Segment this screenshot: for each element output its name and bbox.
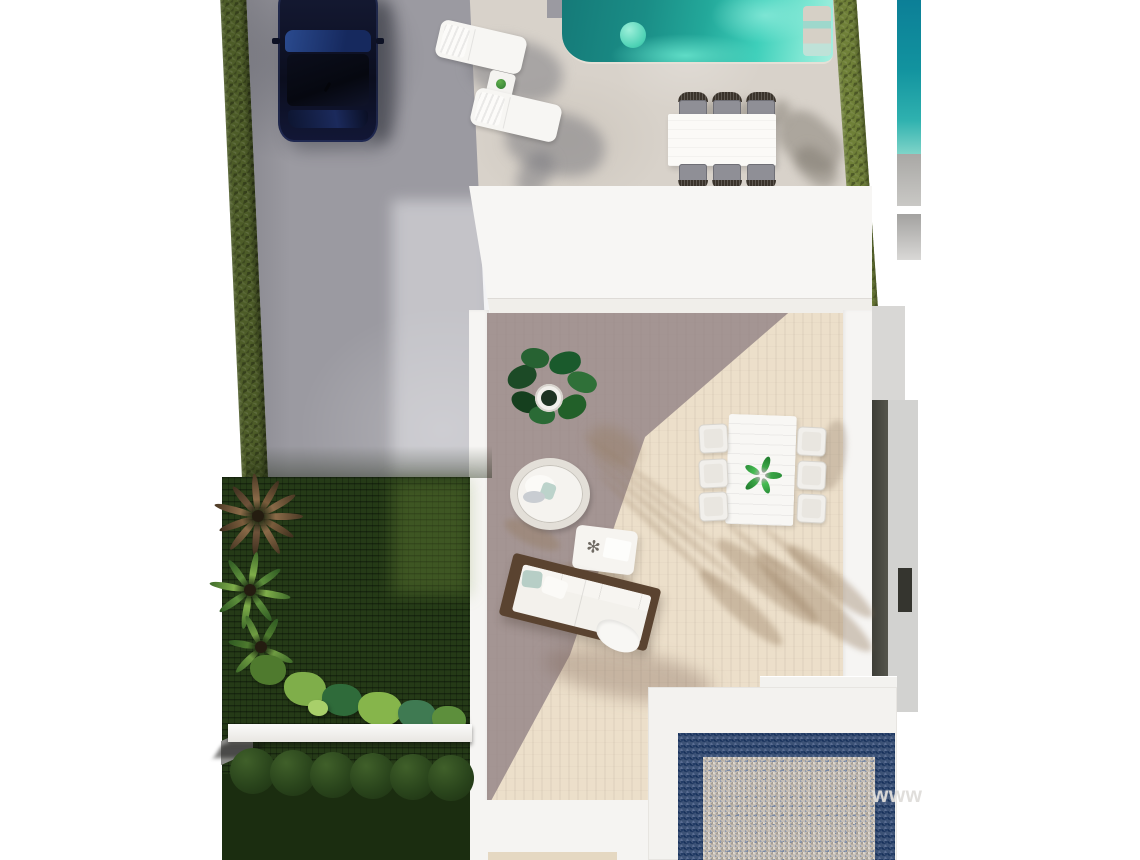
chair-pad — [802, 466, 822, 486]
lawn-sunlit-patch — [392, 480, 470, 595]
house-roof — [465, 186, 872, 315]
pillow — [521, 570, 543, 589]
pool-float — [620, 22, 646, 48]
shrub — [250, 655, 286, 685]
chair-pad — [704, 497, 724, 517]
parked-car — [278, 0, 378, 142]
pot-soil — [541, 390, 557, 406]
coffee-table: ✻ — [572, 524, 639, 575]
terrace-sill — [488, 852, 617, 860]
lounger-pillow — [439, 23, 471, 58]
pool-steps — [803, 6, 831, 56]
roof-edge — [465, 298, 872, 315]
terrace-chair — [796, 493, 826, 523]
car-roof — [287, 54, 369, 106]
shrub — [358, 692, 402, 726]
terrace-lower-wall — [469, 800, 652, 860]
palm-core — [252, 510, 264, 522]
chair-pad — [704, 429, 724, 449]
plant-pot — [535, 384, 563, 412]
planter-ledge — [228, 724, 472, 742]
chair-pad — [802, 499, 822, 519]
lounger-pillow — [474, 91, 506, 126]
watermark: www — [872, 784, 923, 808]
potted-fig-plant — [505, 348, 597, 432]
gravel-patio-inner — [703, 757, 875, 860]
car-mirror-right — [376, 38, 384, 44]
hedge-ball — [428, 755, 474, 801]
wall-window — [898, 568, 912, 612]
hanging-chair — [510, 458, 590, 530]
terrace-chair — [698, 423, 728, 453]
swimming-pool — [562, 0, 833, 64]
terrace-chair — [698, 458, 728, 488]
table-book — [602, 537, 631, 562]
chair-pad — [704, 464, 724, 484]
car-windshield — [285, 30, 371, 52]
table-centerpiece-plant — [742, 455, 782, 495]
deck-shadow-wedge — [547, 0, 562, 18]
aerial-villa-render: ✻ — [0, 0, 1140, 860]
neighbor-building — [872, 400, 918, 712]
terrace-chair — [796, 460, 826, 490]
terrace-chair — [698, 491, 728, 521]
palm-core — [255, 641, 267, 653]
shrub — [322, 684, 362, 716]
poolside-dining-table — [668, 114, 776, 166]
terrace-chair — [796, 426, 826, 456]
neighbor-paving — [897, 214, 921, 260]
neighbor-deck — [897, 154, 921, 206]
throw-blanket — [523, 491, 545, 503]
car-mirror-left — [272, 38, 280, 44]
chair-pad — [802, 432, 822, 452]
potted-plant-small — [495, 78, 507, 90]
boundary-wall — [872, 400, 888, 682]
shrub — [308, 700, 328, 716]
palm-core — [244, 584, 256, 596]
car-rear-window — [288, 110, 368, 128]
gravel-patio — [678, 733, 895, 860]
neighbor-pool — [897, 0, 921, 154]
